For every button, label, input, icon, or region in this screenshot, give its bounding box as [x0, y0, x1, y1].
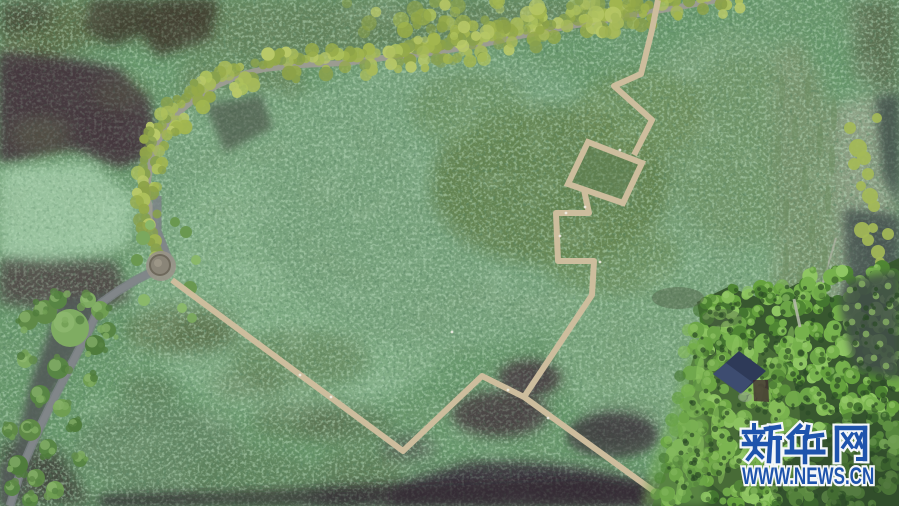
svg-text:WWW.NEWS.CN: WWW.NEWS.CN	[742, 463, 874, 489]
